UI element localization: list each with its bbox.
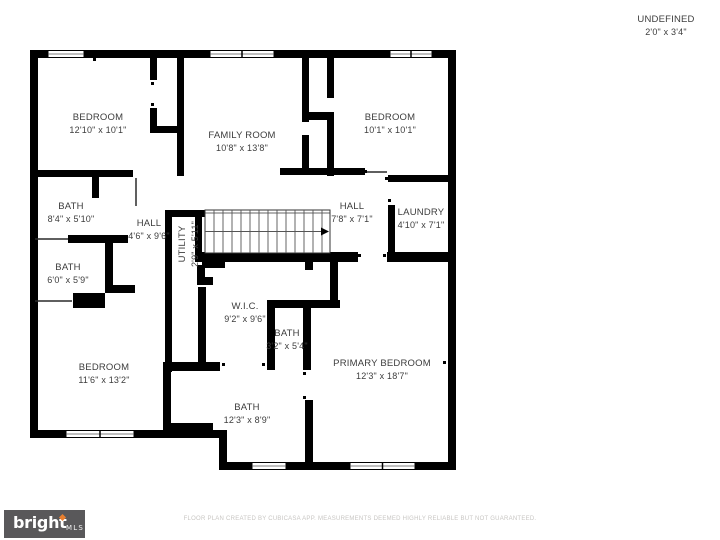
- room-dims: 2'9" x 5'11": [189, 221, 202, 267]
- wall: [388, 175, 448, 182]
- wall: [73, 293, 105, 308]
- wall: [388, 205, 395, 260]
- room-dims: 7'8" x 7'1": [331, 213, 373, 226]
- room-dims: 12'3" x 18'7": [333, 370, 431, 383]
- room-name: BATH: [48, 200, 95, 213]
- room-label-wic: W.I.C. 9'2" x 9'6": [224, 300, 266, 326]
- wall: [305, 262, 313, 270]
- door-jamb-tick: [151, 82, 154, 85]
- room-name: UTILITY: [176, 221, 189, 267]
- wall: [309, 168, 365, 175]
- room-label-bedroom-top-left: BEDROOM 12'10" x 10'1": [69, 111, 126, 137]
- room-name: FAMILY ROOM: [208, 129, 275, 142]
- wall: [305, 400, 313, 462]
- door-jamb-tick: [222, 363, 225, 366]
- door-jamb-tick: [93, 58, 96, 61]
- room-label-undefined: UNDEFINED 2'0" x 3'4": [637, 13, 694, 39]
- room-name: W.I.C.: [224, 300, 266, 313]
- door-jamb-tick: [383, 254, 386, 257]
- room-name: UNDEFINED: [637, 13, 694, 26]
- wall: [387, 252, 456, 262]
- room-label-laundry: LAUNDRY 4'10" x 7'1": [398, 206, 445, 232]
- door-jamb-tick: [113, 240, 116, 243]
- floor-plan-walls: [0, 0, 720, 540]
- room-dims: 4'10" x 7'1": [398, 219, 445, 232]
- room-name: BATH: [266, 327, 308, 340]
- bright-mls-logo: bright MLS: [4, 510, 85, 538]
- wall: [197, 277, 213, 285]
- room-label-bedroom-bottom: BEDROOM 11'6" x 13'2": [78, 361, 129, 387]
- wall: [167, 423, 213, 433]
- wall: [302, 135, 309, 168]
- room-label-bath-2: BATH 6'0" x 5'9": [47, 261, 89, 287]
- room-label-hall-2: HALL 7'8" x 7'1": [331, 200, 373, 226]
- wall: [327, 120, 334, 176]
- room-dims: 6'0" x 5'9": [47, 274, 89, 287]
- disclaimer-text: FLOOR PLAN CREATED BY CUBICASA APP. MEAS…: [0, 516, 720, 522]
- room-name: HALL: [128, 217, 170, 230]
- room-dims: 12'3" x 8'9": [224, 414, 271, 427]
- door-jamb-tick: [151, 103, 154, 106]
- door-jamb-tick: [388, 199, 391, 202]
- room-name: BEDROOM: [364, 111, 416, 124]
- door-jamb-tick: [262, 363, 265, 366]
- room-label-bath-4: BATH 12'3" x 8'9": [224, 401, 271, 427]
- room-label-utility: UTILITY 2'9" x 5'11": [176, 221, 202, 267]
- room-dims: 4'6" x 9'6": [128, 230, 170, 243]
- room-label-bath-3: BATH 3'2" x 5'4": [266, 327, 308, 353]
- door-jamb-tick: [303, 396, 306, 399]
- room-label-family-room: FAMILY ROOM 10'8" x 13'8": [208, 129, 275, 155]
- wall: [105, 243, 113, 285]
- room-label-bath-1: BATH 8'4" x 5'10": [48, 200, 95, 226]
- wall: [105, 285, 135, 293]
- floor-plan: BEDROOM 12'10" x 10'1" FAMILY ROOM 10'8"…: [0, 0, 720, 540]
- room-name: PRIMARY BEDROOM: [333, 357, 431, 370]
- door-jamb-tick: [364, 170, 367, 173]
- wall: [280, 168, 309, 175]
- room-name: LAUNDRY: [398, 206, 445, 219]
- room-name: BEDROOM: [69, 111, 126, 124]
- door-jamb-tick: [385, 177, 388, 180]
- logo-brand-text: bright: [13, 513, 67, 532]
- wall: [68, 235, 128, 243]
- room-dims: 3'2" x 5'4": [266, 340, 308, 353]
- wall: [163, 362, 220, 371]
- wall: [30, 50, 38, 438]
- wall: [202, 253, 225, 268]
- logo-suffix-text: MLS: [66, 524, 84, 532]
- room-label-bedroom-top-right: BEDROOM 10'1" x 10'1": [364, 111, 416, 137]
- wall: [150, 57, 157, 80]
- room-dims: 8'4" x 5'10": [48, 213, 95, 226]
- room-name: BATH: [47, 261, 89, 274]
- room-name: BATH: [224, 401, 271, 414]
- room-label-primary-bedroom: PRIMARY BEDROOM 12'3" x 18'7": [333, 357, 431, 383]
- room-dims: 9'2" x 9'6": [224, 313, 266, 326]
- door-jamb-tick: [443, 361, 446, 364]
- wall: [198, 287, 206, 365]
- door-jamb-tick: [358, 254, 361, 257]
- wall: [33, 170, 133, 177]
- room-dims: 12'10" x 10'1": [69, 124, 126, 137]
- wall: [177, 57, 184, 176]
- room-dims: 10'1" x 10'1": [364, 124, 416, 137]
- room-name: HALL: [331, 200, 373, 213]
- room-dims: 11'6" x 13'2": [78, 374, 129, 387]
- wall: [302, 112, 334, 120]
- room-name: BEDROOM: [78, 361, 129, 374]
- door-jamb-tick: [303, 372, 306, 375]
- wall: [327, 57, 334, 98]
- room-dims: 2'0" x 3'4": [637, 26, 694, 39]
- wall: [330, 262, 338, 308]
- wall: [92, 177, 99, 198]
- room-label-hall-1: HALL 4'6" x 9'6": [128, 217, 170, 243]
- wall: [303, 362, 311, 370]
- room-dims: 10'8" x 13'8": [208, 142, 275, 155]
